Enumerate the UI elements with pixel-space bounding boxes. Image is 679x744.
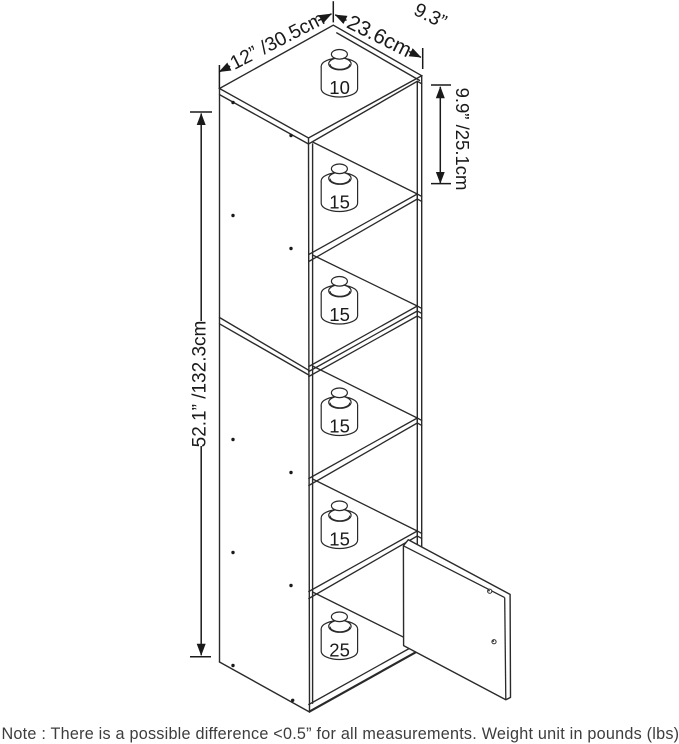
svg-text:9.3”: 9.3” <box>410 0 450 33</box>
svg-text:15: 15 <box>329 416 350 437</box>
svg-text:12” /30.5cm: 12” /30.5cm <box>227 8 329 75</box>
svg-text:9.9” /25.1cm: 9.9” /25.1cm <box>452 88 473 191</box>
svg-text:Note : There is a possible dif: Note : There is a possible difference <0… <box>2 725 679 743</box>
svg-text:15: 15 <box>329 529 350 550</box>
svg-text:52.1” /132.3cm: 52.1” /132.3cm <box>190 321 211 448</box>
svg-text:15: 15 <box>329 304 350 325</box>
svg-text:25: 25 <box>329 640 350 661</box>
svg-text:15: 15 <box>329 192 350 213</box>
svg-text:10: 10 <box>329 77 350 98</box>
svg-text:23.6cm: 23.6cm <box>343 11 415 62</box>
